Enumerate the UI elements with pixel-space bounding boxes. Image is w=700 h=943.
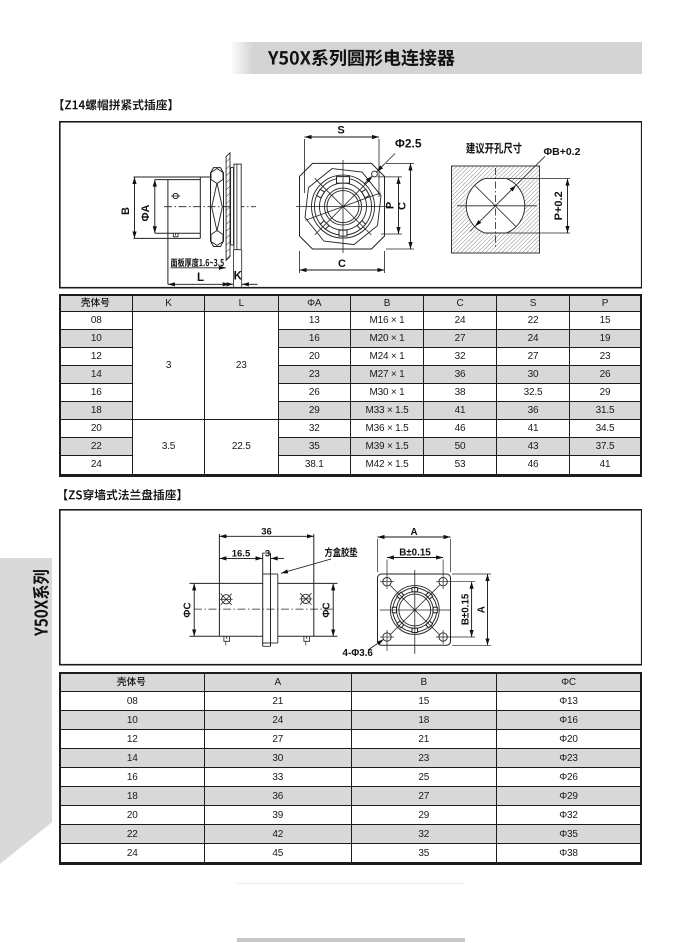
svg-text:4-Φ3.6: 4-Φ3.6 (342, 648, 373, 659)
svg-text:K: K (233, 271, 242, 283)
svg-text:P: P (384, 202, 396, 209)
svg-text:ΦB+0.2: ΦB+0.2 (543, 146, 580, 158)
svg-text:A: A (476, 606, 487, 613)
svg-text:L: L (196, 272, 203, 284)
svg-text:B±0.15: B±0.15 (460, 593, 471, 625)
svg-text:C: C (338, 258, 346, 270)
svg-text:S: S (337, 125, 344, 137)
svg-text:36: 36 (261, 526, 272, 537)
svg-text:B±0.15: B±0.15 (399, 547, 431, 558)
svg-text:Φ2.5: Φ2.5 (395, 137, 422, 151)
svg-text:3: 3 (264, 548, 269, 559)
svg-text:ΦA: ΦA (140, 204, 152, 221)
svg-text:A: A (410, 527, 417, 538)
svg-text:ΦC: ΦC (321, 602, 332, 617)
svg-text:B: B (120, 207, 132, 215)
svg-text:16.5: 16.5 (231, 548, 250, 559)
svg-text:P+0.2: P+0.2 (553, 191, 565, 220)
svg-text:ΦC: ΦC (182, 602, 193, 617)
